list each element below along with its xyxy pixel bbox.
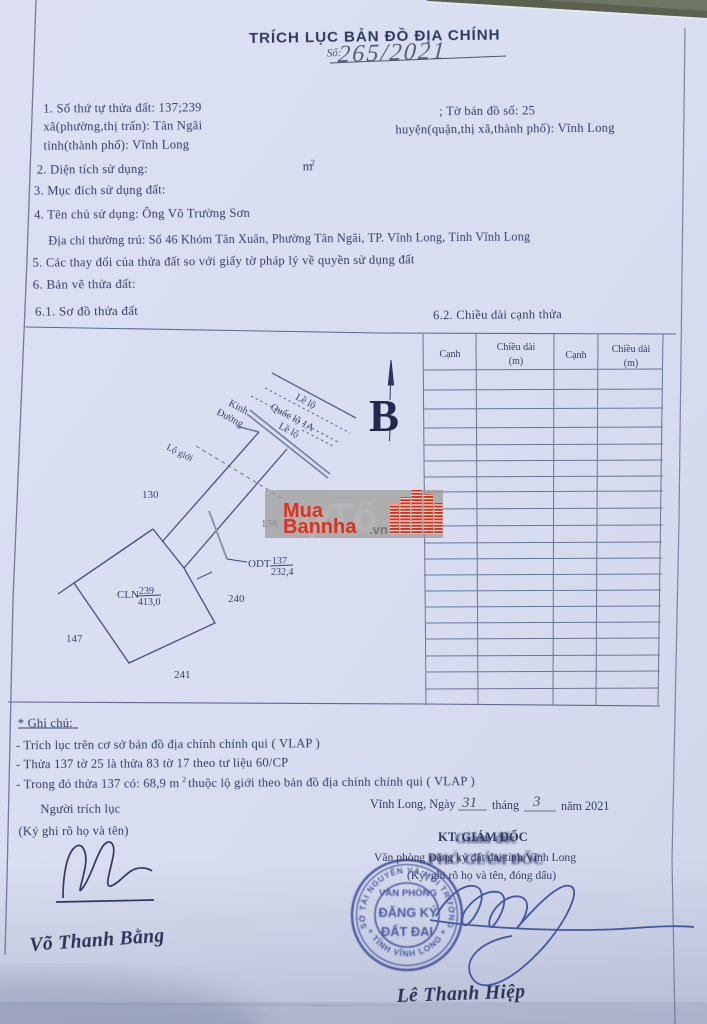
svg-text:3. Mục đích sử dụng đất:: 3. Mục đích sử dụng đất: bbox=[34, 183, 166, 198]
svg-text:CLN: CLN bbox=[117, 589, 139, 601]
svg-text:3: 3 bbox=[532, 794, 541, 810]
svg-text:Chiều dài: Chiều dài bbox=[497, 342, 536, 353]
svg-text:Người trích lục: Người trích lục bbox=[40, 802, 120, 817]
svg-text:(Ký ghi rõ họ và tên): (Ký ghi rõ họ và tên) bbox=[18, 824, 128, 839]
svg-text:tỉnh(thành phố): Vĩnh Long: tỉnh(thành phố): Vĩnh Long bbox=[43, 137, 189, 152]
svg-text:PHÓ GIÁM ĐỐC: PHÓ GIÁM ĐỐC bbox=[428, 850, 544, 868]
svg-text:232,4: 232,4 bbox=[271, 567, 294, 578]
svg-text:130: 130 bbox=[142, 489, 159, 501]
svg-text:tháng: tháng bbox=[492, 798, 519, 812]
svg-text:huyện(quận,thị xã,thành phố):: huyện(quận,thị xã,thành phố): Vĩnh Long bbox=[395, 121, 615, 137]
svg-text:Bannha: Bannha bbox=[283, 516, 357, 538]
svg-text:- Thửa 137 tờ 25 là thửa 83 tờ: - Thửa 137 tờ 25 là thửa 83 tờ 17 theo t… bbox=[16, 755, 288, 771]
svg-text:2. Diện tích sử dụng:: 2. Diện tích sử dụng: bbox=[37, 162, 148, 177]
svg-text:.vn: .vn bbox=[369, 522, 388, 537]
svg-text:6.2. Chiều dài cạnh thửa: 6.2. Chiều dài cạnh thửa bbox=[433, 307, 562, 322]
svg-text:Giám đốc: Giám đốc bbox=[455, 831, 517, 847]
svg-text:265/2021: 265/2021 bbox=[337, 37, 447, 68]
svg-text:Cạnh: Cạnh bbox=[565, 350, 586, 361]
svg-text:Vĩnh Long, Ngày: Vĩnh Long, Ngày bbox=[370, 797, 457, 811]
svg-text:Cạnh: Cạnh bbox=[439, 349, 460, 360]
svg-text:4. Tên chủ sử dụng: Ông Võ Trư: 4. Tên chủ sử dụng: Ông Võ Trường Sơn bbox=[34, 206, 251, 222]
svg-text:1. Số thứ tự thửa đất: 137;239: 1. Số thứ tự thửa đất: 137;239 bbox=[43, 100, 202, 115]
svg-text:; Tờ bản đồ số: 25: ; Tờ bản đồ số: 25 bbox=[439, 103, 535, 118]
svg-text:ĐẤT ĐAI: ĐẤT ĐAI bbox=[381, 924, 433, 939]
svg-text:413,0: 413,0 bbox=[138, 597, 161, 608]
svg-text:B: B bbox=[369, 391, 399, 441]
svg-text:2: 2 bbox=[311, 158, 315, 167]
svg-text:xã(phường,thị trấn): Tân Ngãi: xã(phường,thị trấn): Tân Ngãi bbox=[43, 118, 202, 133]
svg-text:(m): (m) bbox=[624, 358, 638, 369]
svg-text:VĂN PHÒNG: VĂN PHÒNG bbox=[379, 887, 437, 899]
svg-text:147: 147 bbox=[66, 633, 83, 645]
svg-text:- Trích lục trên cơ sở bản đồ: - Trích lục trên cơ sở bản đồ địa chính … bbox=[16, 736, 320, 752]
svg-text:ODT: ODT bbox=[248, 558, 271, 570]
svg-text:31: 31 bbox=[461, 795, 477, 811]
svg-text:241: 241 bbox=[174, 669, 191, 681]
svg-text:(m): (m) bbox=[509, 356, 523, 367]
svg-text:năm 2021: năm 2021 bbox=[561, 799, 609, 813]
svg-text:240: 240 bbox=[228, 593, 245, 605]
svg-text:6.1. Sơ đồ thửa đất: 6.1. Sơ đồ thửa đất bbox=[35, 303, 138, 319]
svg-text:ĐĂNG KÝ: ĐĂNG KÝ bbox=[378, 905, 437, 920]
svg-text:2: 2 bbox=[182, 775, 186, 784]
svg-text:(Ký, ghi rõ họ và tên, đóng dấ: (Ký, ghi rõ họ và tên, đóng dấu) bbox=[407, 869, 556, 882]
svg-text:6. Bản vẽ thửa đất:: 6. Bản vẽ thửa đất: bbox=[33, 276, 136, 292]
svg-text:Chiều dài: Chiều dài bbox=[612, 344, 651, 355]
svg-text:thuộc lộ giới theo bản đồ địa: thuộc lộ giới theo bản đồ địa chính chín… bbox=[188, 774, 475, 790]
svg-text:- Trong đó thửa 137 có: 68,9: - Trong đó thửa 137 có: 68,9 m bbox=[16, 776, 179, 791]
